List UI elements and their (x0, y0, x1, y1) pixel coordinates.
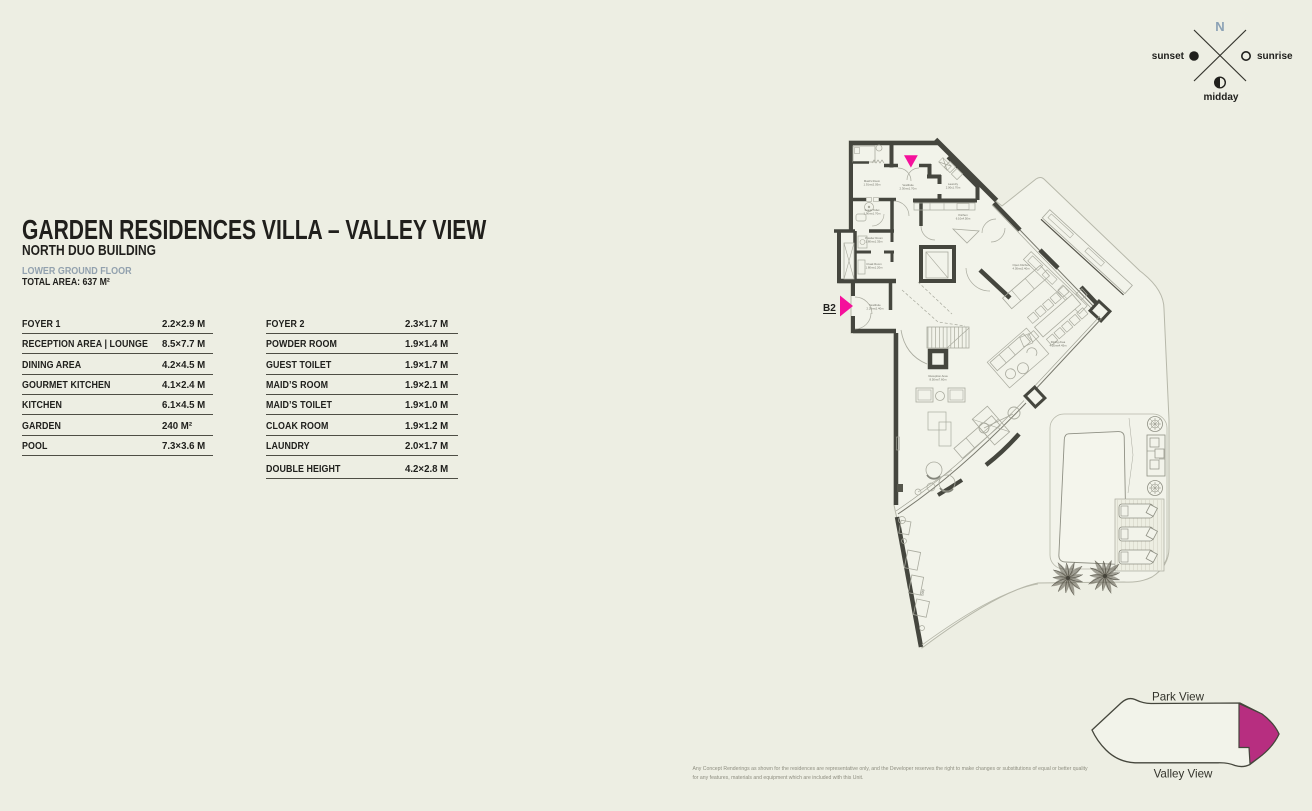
svg-text:2.30mx1.70m: 2.30mx1.70m (900, 186, 918, 190)
svg-text:1.91mx2.05m: 1.91mx2.05m (864, 182, 882, 186)
svg-text:Park View: Park View (1152, 691, 1205, 704)
svg-text:1.80mx1.35m: 1.80mx1.35m (866, 239, 884, 243)
svg-text:sunset: sunset (1152, 51, 1185, 62)
svg-text:4.20mx4.45m: 4.20mx4.45m (1050, 343, 1068, 347)
svg-text:6.10x4.50m: 6.10x4.50m (956, 216, 971, 220)
svg-text:2.00x1.70m: 2.00x1.70m (946, 185, 961, 189)
svg-text:midday: midday (1203, 92, 1238, 103)
svg-text:2.20mx2.40m: 2.20mx2.40m (867, 306, 885, 310)
svg-text:1.90mx1.70m: 1.90mx1.70m (864, 211, 882, 215)
svg-text:B2: B2 (823, 303, 836, 314)
svg-text:sunrise: sunrise (1257, 51, 1293, 62)
svg-text:4.05mx2.40m: 4.05mx2.40m (1013, 266, 1031, 270)
svg-text:8.50mx7.60m: 8.50mx7.60m (930, 377, 948, 381)
svg-text:N: N (1215, 19, 1224, 34)
svg-text:Valley View: Valley View (1154, 768, 1213, 781)
svg-text:1.80mx1.20m: 1.80mx1.20m (866, 265, 884, 269)
